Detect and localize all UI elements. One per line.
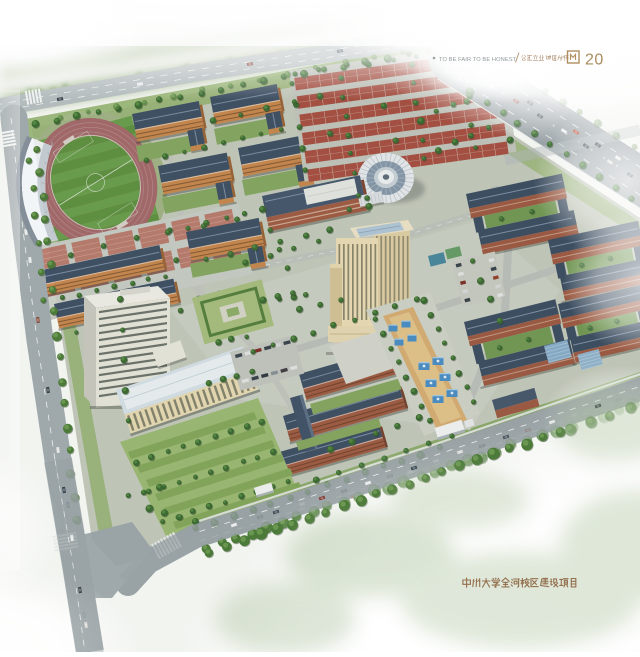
svg-text:TO BE FAIR TO BE HONEST: TO BE FAIR TO BE HONEST [439,57,517,63]
svg-text:20: 20 [585,52,604,69]
